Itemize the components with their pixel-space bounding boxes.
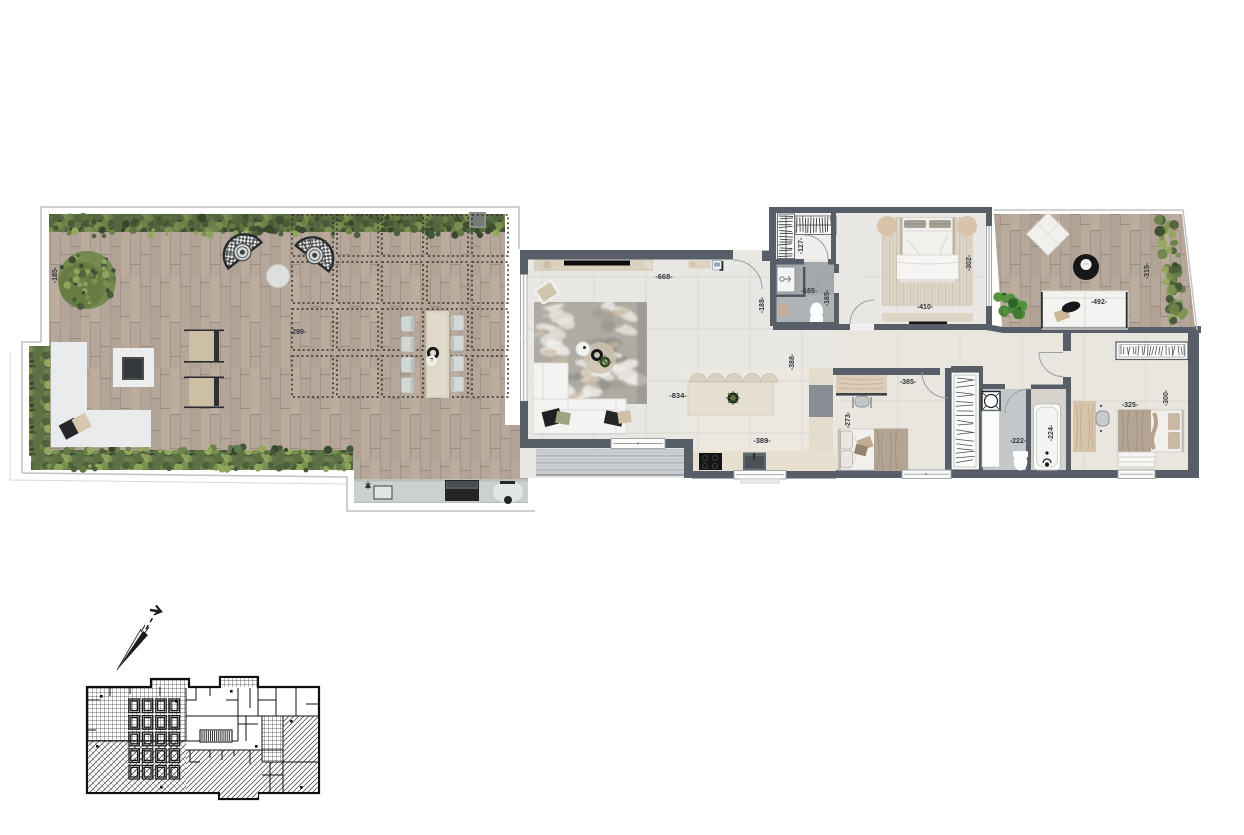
svg-text:-385-: -385- [900, 379, 917, 386]
svg-text:-185-: -185- [52, 266, 59, 283]
svg-text:-325-: -325- [1122, 402, 1139, 409]
svg-text:-300-: -300- [1163, 389, 1170, 406]
svg-text:-127-: -127- [798, 237, 805, 254]
svg-text:-188-: -188- [759, 296, 766, 313]
svg-text:-834-: -834- [669, 391, 687, 400]
svg-text:-222-: -222- [1010, 438, 1027, 445]
svg-text:-165-: -165- [824, 289, 831, 306]
svg-text:-224-: -224- [1048, 424, 1055, 441]
svg-text:-668-: -668- [655, 272, 673, 281]
svg-text:-315-: -315- [1144, 262, 1151, 279]
svg-text:-273-: -273- [845, 411, 852, 428]
svg-text:-410-: -410- [917, 304, 934, 311]
svg-text:-388-: -388- [789, 353, 796, 370]
svg-text:-389-: -389- [753, 436, 771, 445]
svg-text:-299-: -299- [290, 329, 307, 336]
svg-text:-492-: -492- [1091, 299, 1108, 306]
svg-text:-302-: -302- [966, 254, 973, 271]
